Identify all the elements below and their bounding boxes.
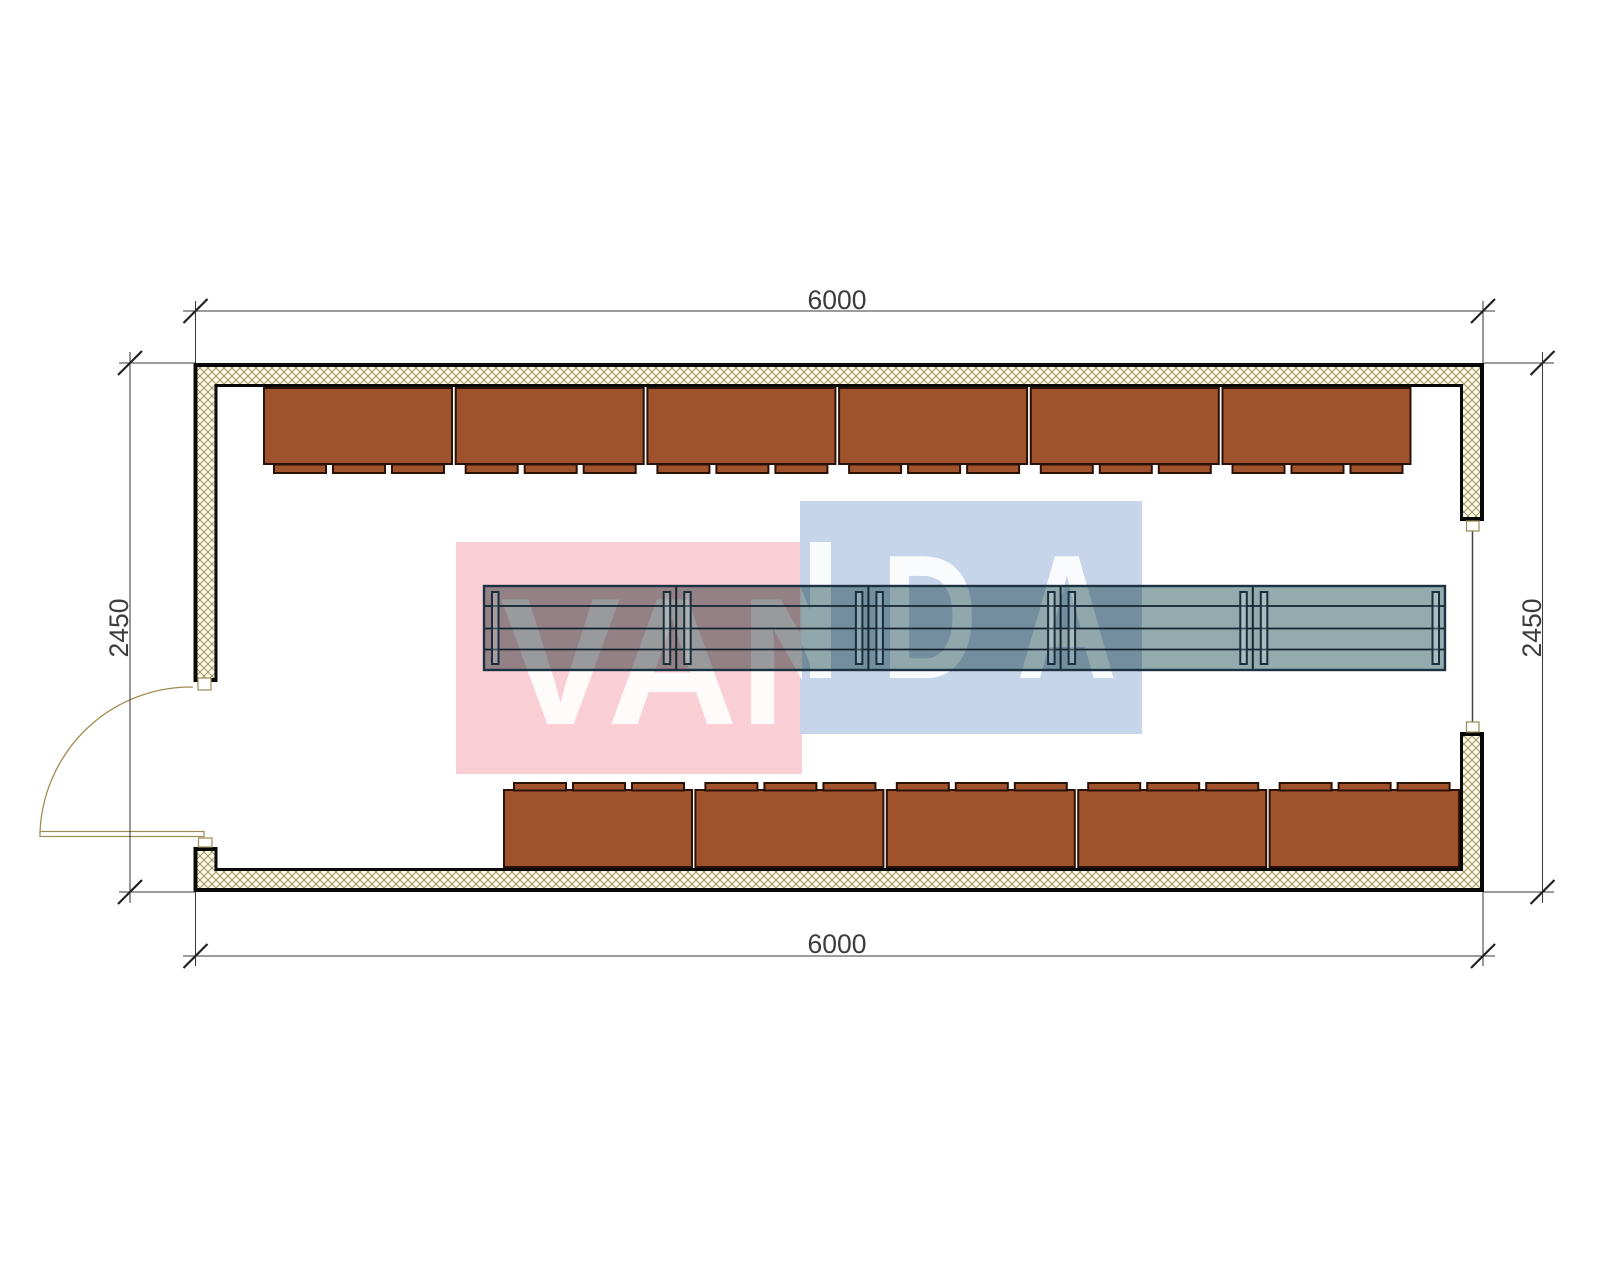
svg-text:2450: 2450: [104, 599, 134, 658]
svg-text:6000: 6000: [808, 929, 867, 959]
svg-text:6000: 6000: [808, 285, 867, 315]
svg-text:2450: 2450: [1517, 599, 1547, 658]
